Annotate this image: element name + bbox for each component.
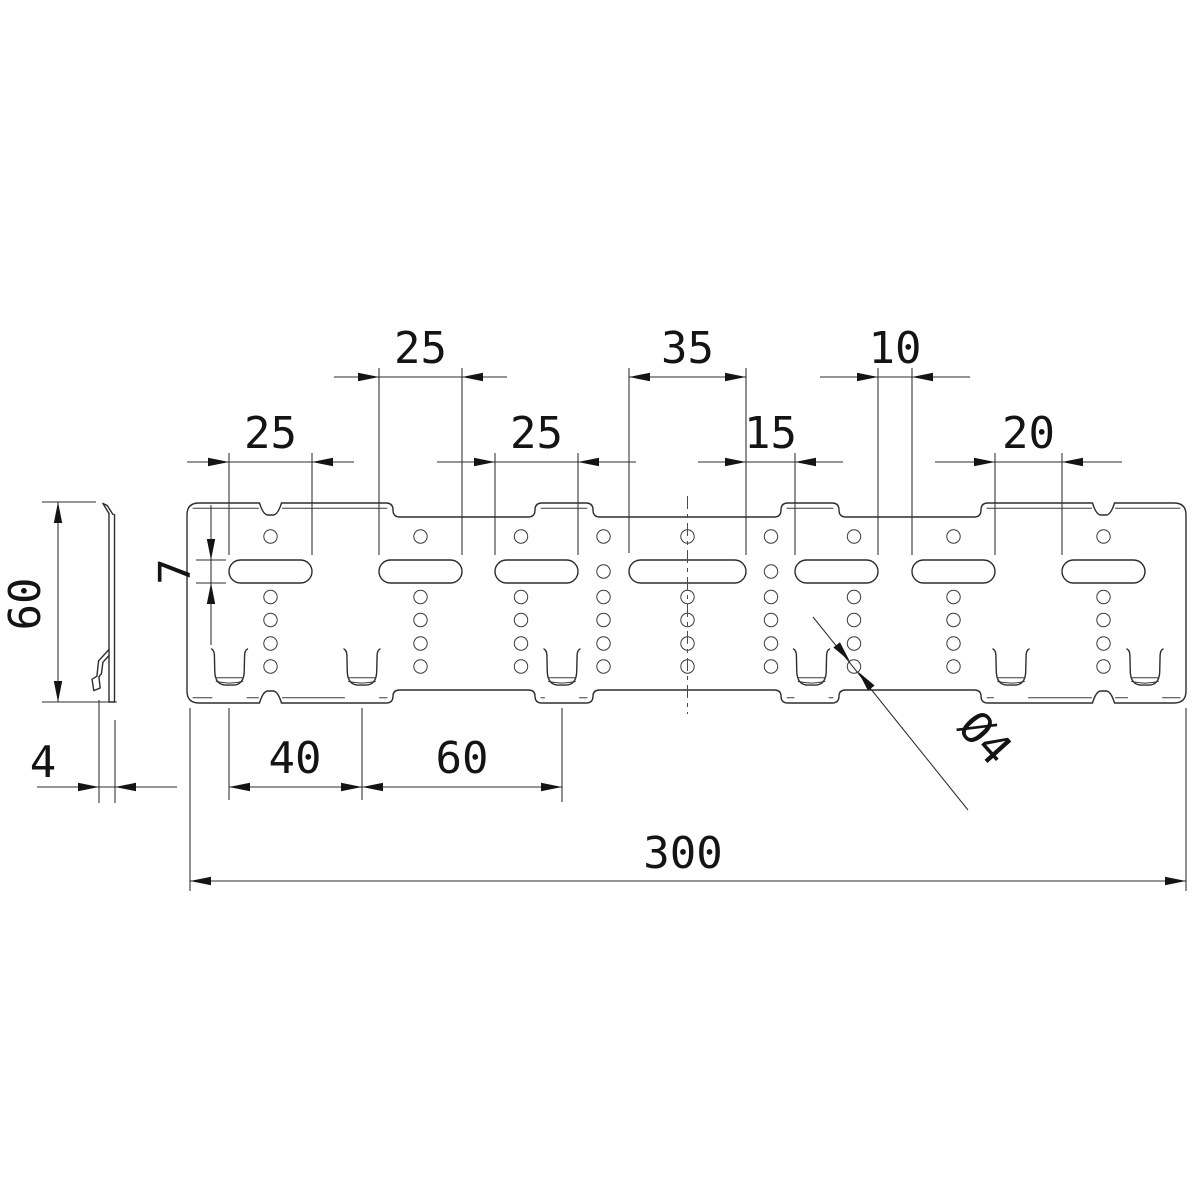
u-tab-bend-lines [1131,678,1159,683]
hole [514,590,527,603]
hole [1097,613,1110,626]
hole [414,590,427,603]
hole [947,613,960,626]
dimension-slot3-length: 25 [437,408,636,555]
hole [947,590,960,603]
slot [912,560,995,583]
dimension-overall-length: 300 [190,708,1186,891]
hole [847,530,860,543]
hole [514,613,527,626]
slot [229,560,312,583]
hole [1097,637,1110,650]
hole [764,530,777,543]
drawing-page: 2535102525152040603006047Ø4 [0,0,1200,1200]
hole [764,565,777,578]
hole [764,590,777,603]
hole [264,660,277,673]
u-tab-bend-lines [348,678,376,683]
dimension-slot2-length: 25 [334,323,507,555]
hole [847,590,860,603]
hole [514,660,527,673]
hole [514,637,527,650]
u-tab-bend-lines [997,678,1025,683]
dimension-label-hole-diameter: Ø4 [948,702,1021,776]
hole [847,637,860,650]
u-tab-cutout [1127,649,1163,685]
dimension-label-slot-height: 7 [150,558,201,585]
slot [795,560,878,583]
hole [264,637,277,650]
dimension-slot-gap-10: 10 [820,323,970,555]
dimension-label-slot-gap-10: 10 [869,323,922,374]
dimension-overall-height: 60 [0,502,117,702]
side-hook [92,650,109,691]
hole [414,637,427,650]
u-tab-bend-lines [216,678,244,683]
dimension-label-overall-length: 300 [643,828,722,879]
u-tab-bend-lines [798,678,826,683]
hole [597,590,610,603]
hole [264,613,277,626]
hole [597,565,610,578]
dimension-center-slot-length: 35 [629,323,746,555]
dimension-tab-spacing-60: 60 [362,708,562,802]
dimension-tab-spacing-40: 40 [229,708,362,800]
dimension-label-center-slot-length: 35 [661,323,714,374]
slot [379,560,462,583]
slot [495,560,578,583]
hole [514,530,527,543]
hole [847,613,860,626]
dimension-thickness: 4 [30,700,177,803]
hole [1097,590,1110,603]
hole [947,637,960,650]
dimension-slot-gap-20: 20 [935,408,1122,555]
hole [414,660,427,673]
hole [597,530,610,543]
front-view [187,496,1186,714]
u-tab-bend-lines [548,678,576,683]
dimension-label-thickness: 4 [30,737,57,788]
u-tab-cutout [544,649,580,685]
technical-drawing: 2535102525152040603006047Ø4 [0,0,1200,1200]
dimension-label-slot-gap-20: 20 [1002,408,1055,459]
dimension-label-overall-height: 60 [0,578,51,631]
dimension-label-slot2-length: 25 [394,323,447,374]
hole [414,613,427,626]
dimension-label-tab-spacing-40: 40 [269,733,322,784]
hole [1097,660,1110,673]
hole [264,590,277,603]
hole [764,660,777,673]
dimension-slot1-length: 25 [187,408,354,555]
dimension-slot-height: 7 [150,505,226,645]
u-tab-cutout [794,649,830,685]
hole [597,613,610,626]
hole [264,530,277,543]
u-tab-cutout [344,649,380,685]
side-view [92,504,115,703]
hole [947,530,960,543]
slot [1062,560,1145,583]
hole [947,660,960,673]
u-tab-cutout [993,649,1029,685]
dimension-label-slot1-length: 25 [244,408,297,459]
hole [414,530,427,543]
hole [597,660,610,673]
dimension-label-slot3-length: 25 [510,408,563,459]
u-tab-cutout [212,649,248,685]
hole [1097,530,1110,543]
dimension-slot-gap-15: 15 [698,408,843,555]
dimension-label-slot-gap-15: 15 [744,408,797,459]
dimension-label-tab-spacing-60: 60 [436,733,489,784]
hole [597,637,610,650]
leader-hole-diameter: Ø4 [813,617,1021,810]
hole [764,637,777,650]
hole [764,613,777,626]
